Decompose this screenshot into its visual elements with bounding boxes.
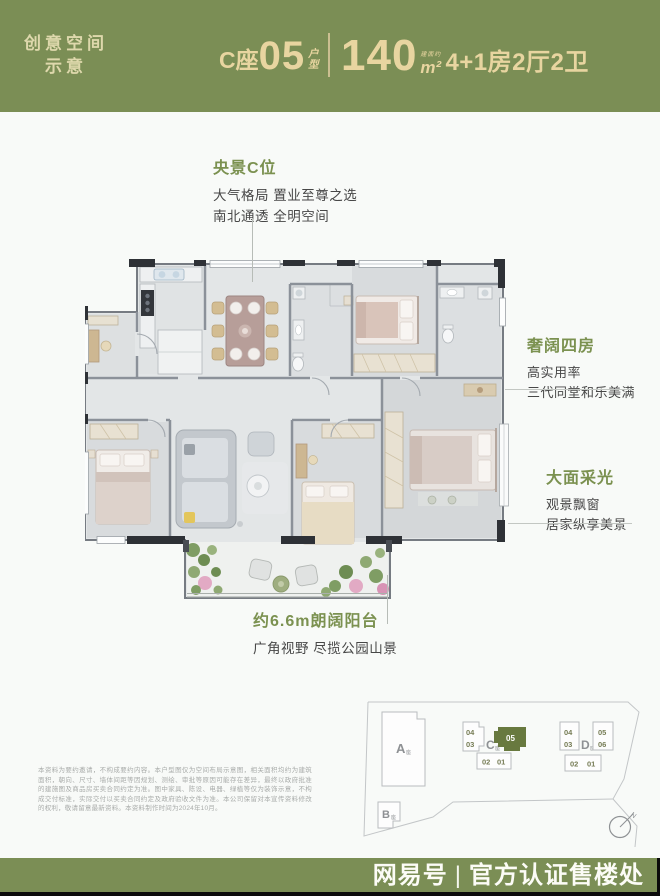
unit-title: C座 05 户 型 — [219, 30, 319, 76]
annotation-daylight: 大面采光 观景飘窗 居家纵享美景 — [546, 464, 627, 535]
d-unit-02: 02 — [570, 760, 578, 769]
building-label: C座 — [219, 49, 259, 76]
hall-sideboard — [464, 384, 496, 396]
bottom-black-edge — [0, 892, 660, 896]
c-unit-01: 01 — [497, 758, 505, 767]
annotation-balcony-title: 约6.6m朗阔阳台 — [253, 607, 397, 631]
building-a-label: A — [396, 741, 406, 756]
footer-separator: | — [455, 862, 462, 889]
header: 创意空间 示意 C座 05 户 型 140 建面约 m² 4+1房2厅2卫 — [0, 0, 660, 112]
area-spec: 140 建面约 m² 4+1房2厅2卫 — [341, 28, 589, 78]
annotation-center-view-line1: 大气格局 置业至尊之选 — [213, 185, 357, 206]
annotation-center-view: 央景C位 大气格局 置业至尊之选 南北通透 全明空间 — [213, 154, 357, 227]
c-unit-02: 02 — [482, 758, 490, 767]
annotation-balcony-line1: 广角视野 尽揽公园山景 — [253, 638, 397, 659]
living-room-sofa — [176, 430, 288, 528]
area-value: 140 — [341, 34, 417, 78]
unit-type-char2: 型 — [308, 60, 319, 71]
d-unit-01: 01 — [587, 760, 595, 769]
c-unit-03: 03 — [466, 740, 474, 749]
annotation-four-rooms-line2: 三代同堂和乐美满 — [527, 383, 635, 403]
area-unit-column: 建面约 m² — [417, 52, 445, 78]
area-unit: m² — [420, 59, 441, 76]
d-unit-05: 05 — [598, 728, 606, 737]
site-plan: A 座 B 座 04 03 C 座 05 02 01 — [350, 690, 660, 856]
site-building-c: 04 03 C 座 05 02 01 — [463, 722, 526, 769]
floor-plan-illustration — [85, 255, 515, 605]
annotation-four-rooms: 奢阔四房 高实用率 三代同堂和乐美满 — [527, 332, 635, 403]
layout-spec: 4+1房2厅2卫 — [445, 51, 588, 78]
d-unit-03: 03 — [564, 740, 572, 749]
leader-line-four-rooms — [505, 389, 632, 390]
disclaimer: 本资料为要约邀请，不构成要约内容。本户型图仅为空间布局示意图，相关面积均约为建筑… — [38, 766, 312, 814]
building-b-suffix: 座 — [391, 814, 396, 821]
annotation-balcony: 约6.6m朗阔阳台 广角视野 尽揽公园山景 — [253, 607, 397, 659]
unit-number: 05 — [259, 36, 306, 76]
poster: 创意空间 示意 C座 05 户 型 140 建面约 m² 4+1房2厅2卫 央景… — [0, 0, 660, 896]
annotation-four-rooms-line1: 高实用率 — [527, 363, 635, 383]
site-building-b: B 座 — [378, 802, 400, 828]
leader-line-daylight — [508, 523, 632, 524]
leader-line-center-view — [252, 218, 253, 282]
netease-brand-logo: 网易号 — [373, 862, 448, 889]
badge-line2: 示意 — [14, 55, 118, 78]
c-unit-05: 05 — [506, 734, 515, 743]
creative-space-badge: 创意空间 示意 — [14, 32, 118, 78]
compass-icon: N — [610, 811, 638, 837]
building-b-label: B — [382, 809, 390, 821]
c-unit-04: 04 — [466, 728, 475, 737]
dining-table — [212, 296, 278, 366]
building-a-suffix: 座 — [406, 749, 411, 756]
site-building-a: A 座 — [382, 712, 425, 786]
badge-line1: 创意空间 — [14, 32, 118, 55]
building-d-label: D — [581, 738, 590, 752]
site-building-d: 04 03 D 座 05 06 02 01 — [560, 722, 613, 771]
annotation-center-view-title: 央景C位 — [213, 154, 357, 178]
footer-text: 官方认证售楼处 — [469, 862, 644, 889]
footer-bar: 网易号|官方认证售楼处 — [0, 858, 660, 892]
leader-line-balcony — [387, 575, 388, 624]
building-c-label: C — [486, 738, 495, 752]
unit-type-stack: 户 型 — [305, 49, 319, 76]
d-unit-06: 06 — [598, 740, 606, 749]
annotation-daylight-line2: 居家纵享美景 — [546, 515, 627, 535]
annotation-daylight-line1: 观景飘窗 — [546, 495, 627, 515]
d-unit-04: 04 — [564, 728, 573, 737]
annotation-daylight-title: 大面采光 — [546, 464, 627, 488]
annotation-four-rooms-title: 奢阔四房 — [527, 332, 635, 356]
header-divider — [328, 33, 330, 77]
annotation-center-view-line2: 南北通透 全明空间 — [213, 206, 357, 227]
